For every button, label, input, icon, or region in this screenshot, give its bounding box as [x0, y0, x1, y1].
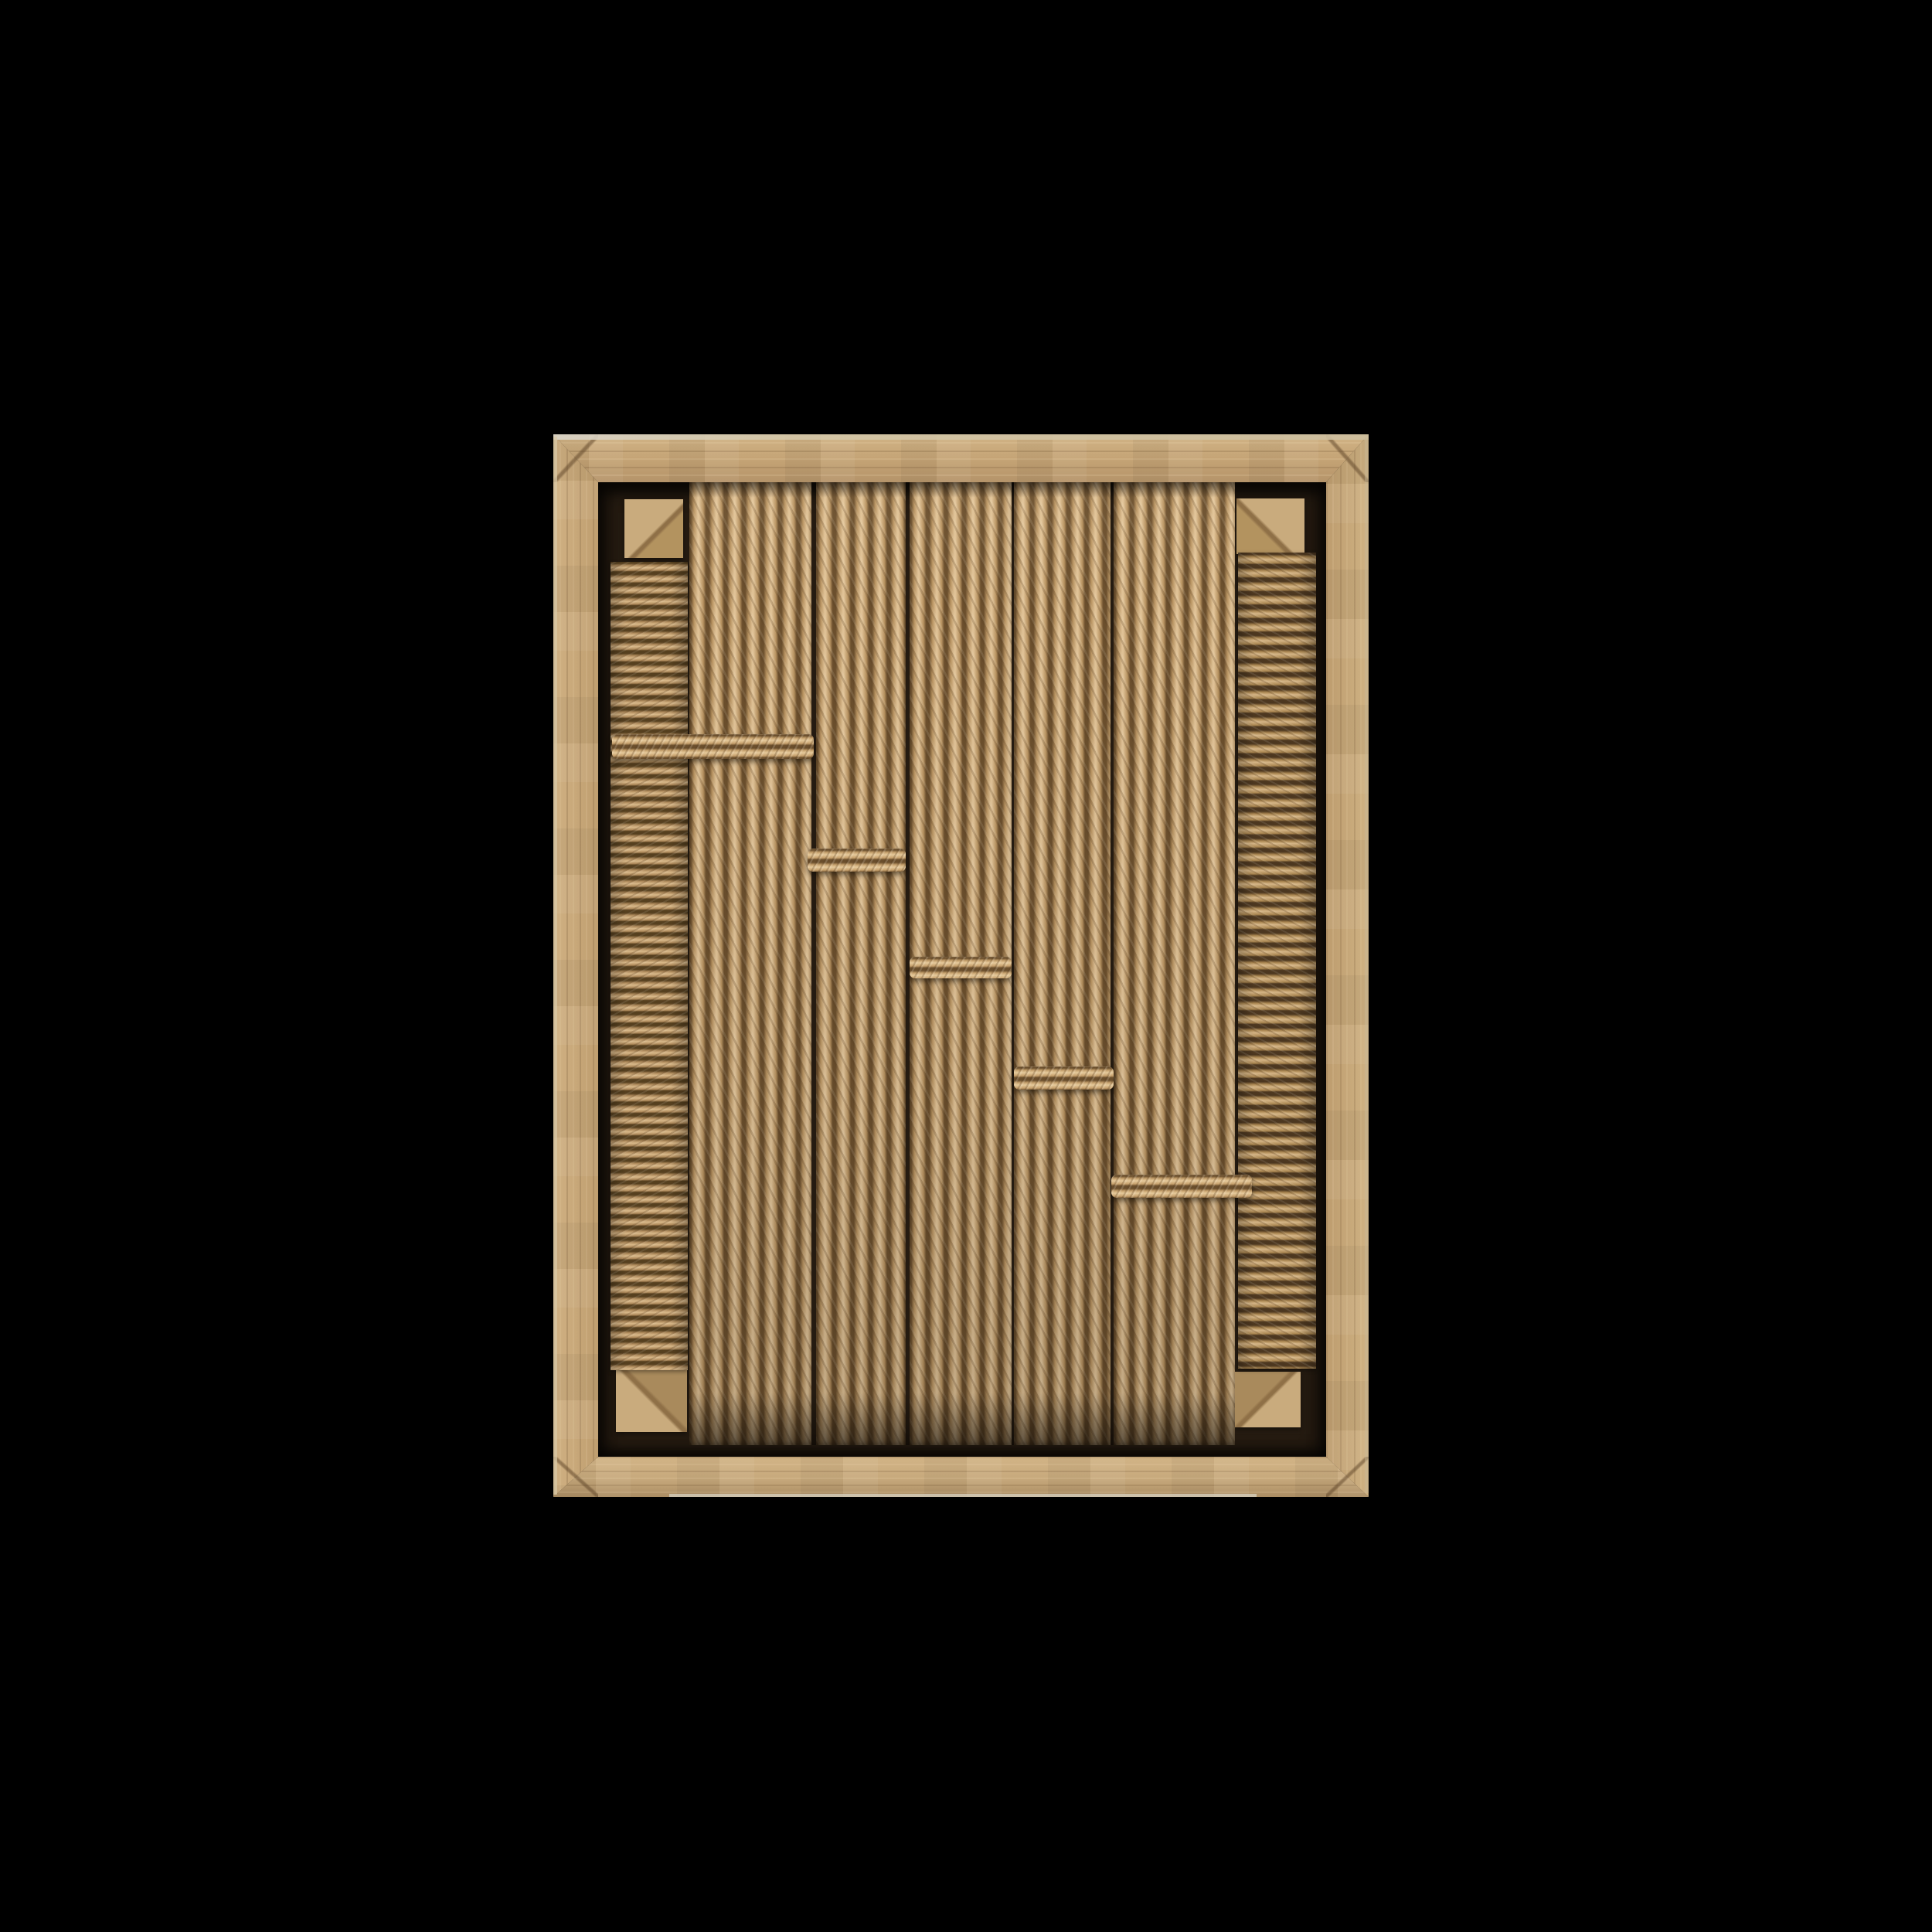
binder-band-3: [910, 957, 1012, 978]
binder-band-4: [1014, 1066, 1114, 1090]
stretcher-corner-top-left: [624, 499, 683, 558]
product-photo-canvas: [0, 0, 1932, 1932]
frame-edge-sheen-right: [1365, 438, 1369, 1493]
cord-group-2: [816, 481, 906, 1445]
recess-top-shadow: [598, 482, 1326, 498]
stretcher-corner-top-right: [1236, 498, 1304, 554]
binder-band-2: [808, 849, 906, 872]
binder-band-1: [612, 734, 814, 759]
cord-group-5: [1114, 481, 1235, 1445]
frame-bar-right: [1326, 434, 1369, 1497]
frame-miter-seam-bl: [553, 1457, 598, 1497]
frame-bar-top: [553, 434, 1369, 482]
binder-band-5: [1111, 1175, 1252, 1198]
right-rail-coil: [1238, 553, 1316, 1369]
stretcher-corner-bottom-left: [616, 1370, 687, 1432]
frame-miter-seam-br: [1326, 1457, 1369, 1497]
frame-miter-seam-tl: [553, 434, 598, 482]
cord-field-bottom-fade: [689, 1393, 1235, 1445]
frame-bar-left: [553, 434, 598, 1497]
cord-group-1: [689, 481, 811, 1445]
frame-edge-sheen-top: [553, 434, 1369, 440]
artwork-frame: [553, 434, 1369, 1497]
frame-edge-sheen-bottom: [669, 1494, 1257, 1497]
frame-bar-bottom: [553, 1457, 1369, 1497]
frame-edge-sheen-left: [553, 437, 557, 1495]
frame-miter-seam-tr: [1326, 434, 1369, 482]
stretcher-corner-bottom-right: [1234, 1372, 1301, 1427]
cord-group-4: [1014, 481, 1111, 1445]
left-rail-coil: [611, 562, 688, 1370]
